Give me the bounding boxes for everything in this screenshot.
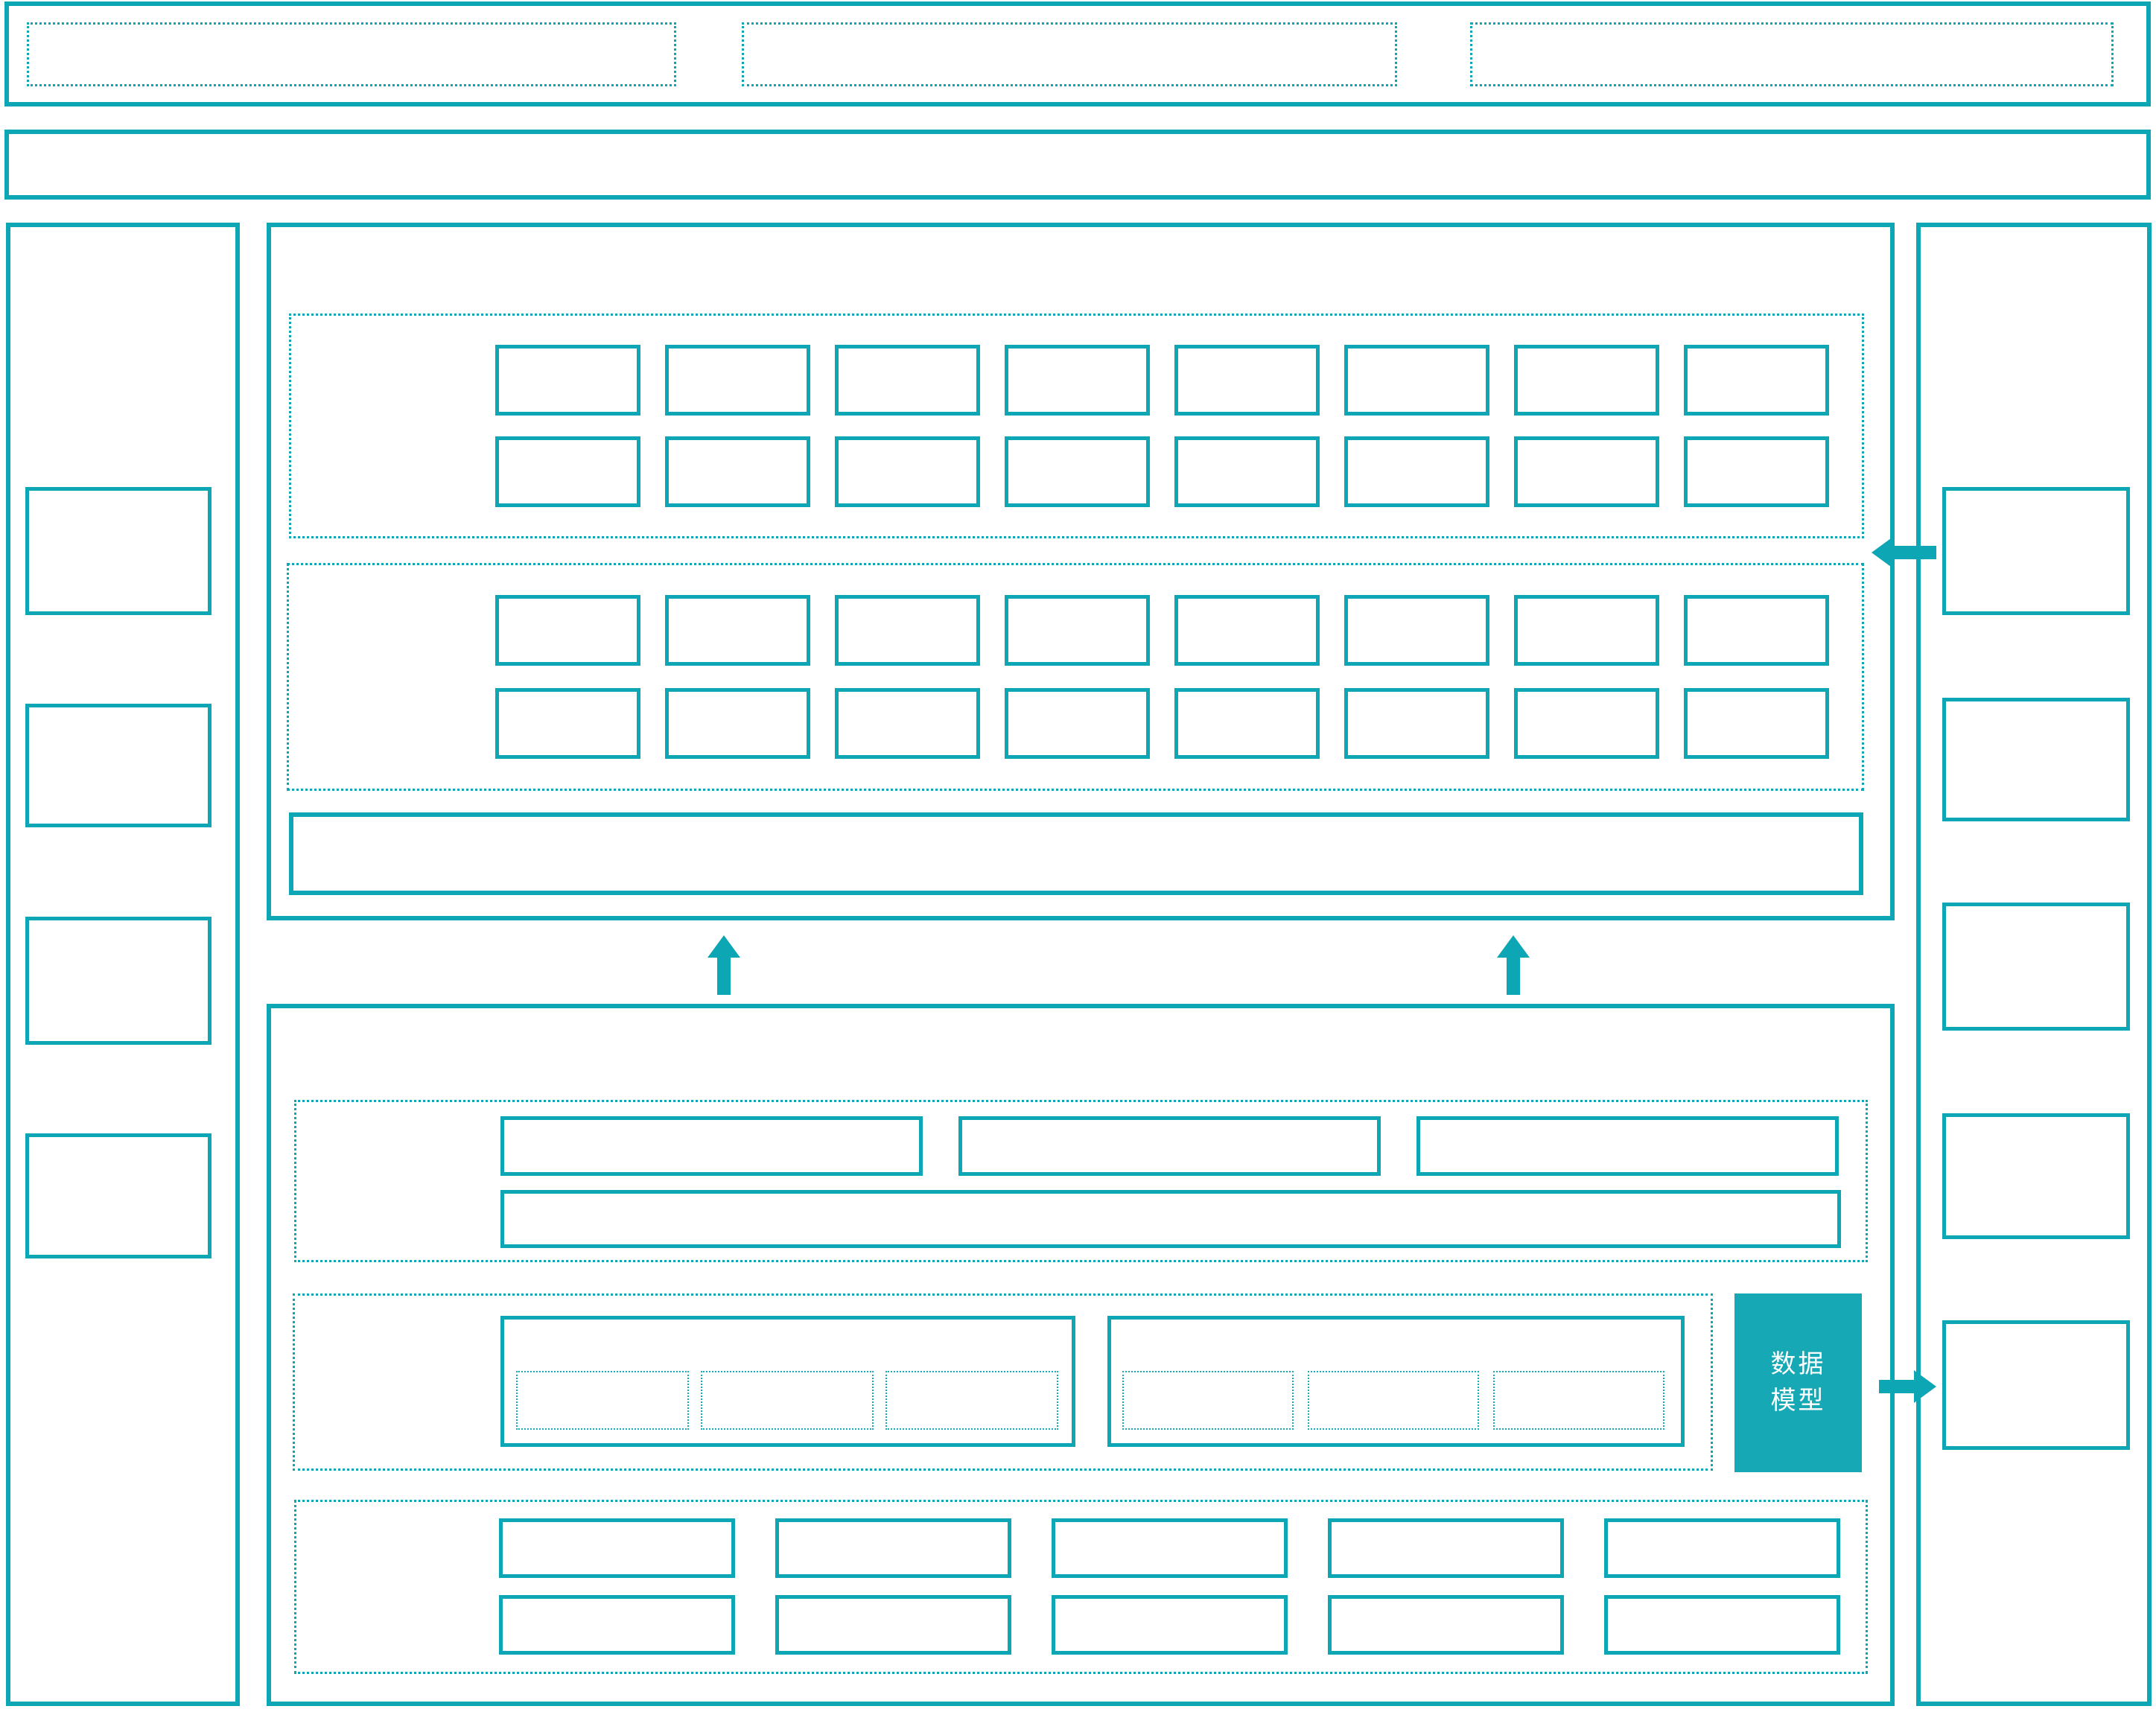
right-sidebar-box-3 (1942, 903, 2130, 1031)
grid-box (1328, 1518, 1564, 1578)
grid-box (499, 1518, 735, 1578)
grid-box (1174, 436, 1320, 507)
grid-box (1684, 436, 1829, 507)
top-group2-row-2 (495, 688, 1829, 759)
module-right-sub-row (1122, 1371, 1664, 1430)
top-group1-row-2 (495, 436, 1829, 507)
bottom-group3-row-1 (499, 1518, 1840, 1578)
grid-box (495, 345, 640, 416)
right-sidebar-box-4 (1942, 1113, 2130, 1239)
top-section-wide-bar (289, 812, 1863, 895)
grid-box (1174, 345, 1320, 416)
left-arrow-icon (1872, 536, 1936, 569)
grid-box (1344, 436, 1489, 507)
grid-box (835, 688, 980, 759)
second-bar (4, 130, 2151, 200)
strip-box (500, 1116, 923, 1176)
bottom-group3-row-2 (499, 1595, 1840, 1655)
grid-box (775, 1518, 1011, 1578)
grid-box (665, 595, 810, 666)
module-sub-box (1122, 1371, 1294, 1430)
grid-box (1174, 688, 1320, 759)
grid-box (1052, 1595, 1288, 1655)
module-sub-box (885, 1371, 1058, 1430)
grid-box (835, 345, 980, 416)
left-sidebar-box-4 (25, 1133, 212, 1258)
grid-box (1514, 345, 1659, 416)
grid-box (835, 595, 980, 666)
left-sidebar-box-1 (25, 487, 212, 615)
grid-box (1684, 688, 1829, 759)
grid-box (1604, 1595, 1840, 1655)
top-bar-slot-1 (27, 22, 676, 86)
top-bar-slot-2 (742, 22, 1397, 86)
data-model-label: 数据模型 (1769, 1346, 1828, 1420)
right-sidebar-box-1 (1942, 487, 2130, 615)
grid-box (1514, 595, 1659, 666)
right-sidebar-box-2 (1942, 698, 2130, 821)
grid-box (775, 1595, 1011, 1655)
top-group1-row-1 (495, 345, 1829, 416)
top-group2-row-1 (495, 595, 1829, 666)
grid-box (495, 436, 640, 507)
top-bar-slot-3 (1470, 22, 2114, 86)
grid-box (665, 345, 810, 416)
grid-box (1604, 1518, 1840, 1578)
strip-box (958, 1116, 1381, 1176)
up-arrow-right-icon (1497, 935, 1530, 995)
grid-box (1684, 345, 1829, 416)
grid-box (665, 436, 810, 507)
module-sub-box (1308, 1371, 1479, 1430)
strip-box (1416, 1116, 1839, 1176)
grid-box (495, 688, 640, 759)
module-sub-box (701, 1371, 874, 1430)
grid-box (495, 595, 640, 666)
bottom-group1-row (500, 1116, 1839, 1176)
grid-box (1005, 688, 1150, 759)
grid-box (1514, 436, 1659, 507)
up-arrow-left-icon (707, 935, 740, 995)
right-sidebar-box-5 (1942, 1320, 2130, 1450)
grid-box (1005, 595, 1150, 666)
grid-box (835, 436, 980, 507)
grid-box (1344, 345, 1489, 416)
grid-box (499, 1595, 735, 1655)
module-sub-box (1493, 1371, 1664, 1430)
grid-box (1684, 595, 1829, 666)
grid-box (1328, 1595, 1564, 1655)
left-sidebar-box-3 (25, 917, 212, 1045)
grid-box (1344, 688, 1489, 759)
grid-box (1005, 436, 1150, 507)
bottom-group1-wide-bar (500, 1190, 1841, 1248)
grid-box (1514, 688, 1659, 759)
diagram-page: 数据模型 (0, 0, 2156, 1709)
module-left-sub-row (516, 1371, 1058, 1430)
grid-box (1344, 595, 1489, 666)
grid-box (1174, 595, 1320, 666)
left-sidebar-box-2 (25, 704, 212, 827)
grid-box (665, 688, 810, 759)
grid-box (1052, 1518, 1288, 1578)
right-arrow-icon (1879, 1370, 1936, 1403)
grid-box (1005, 345, 1150, 416)
data-model-box: 数据模型 (1734, 1293, 1862, 1472)
module-sub-box (516, 1371, 689, 1430)
